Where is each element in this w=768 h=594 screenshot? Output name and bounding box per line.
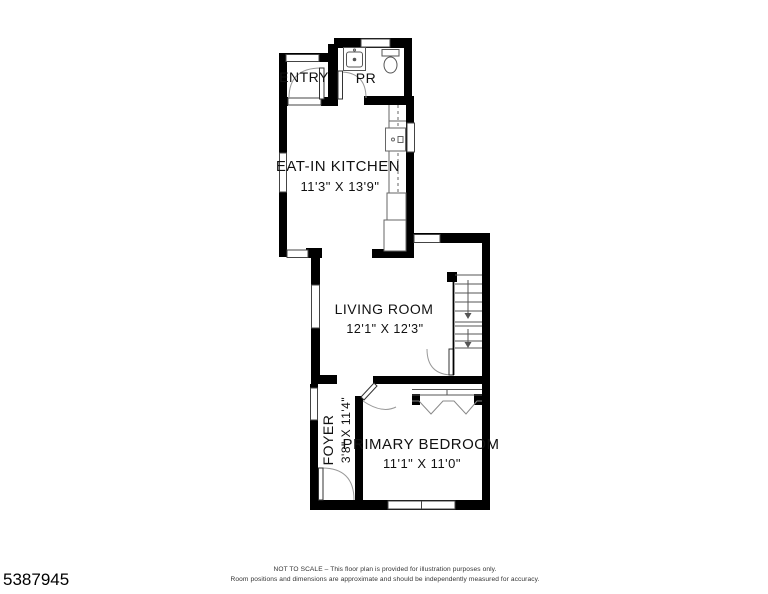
- window-pr-top: [361, 39, 390, 47]
- disclaimer-line-1: NOT TO SCALE – This floor plan is provid…: [273, 566, 496, 573]
- window-kitchen-step: [287, 250, 308, 258]
- window-foyer-left: [311, 388, 318, 420]
- window-entry-top: [286, 55, 319, 62]
- cabinet-icon: [384, 220, 406, 251]
- kitchen-dims: 11'3" X 13'9": [300, 179, 379, 194]
- living-room-label: LIVING ROOM: [335, 301, 434, 317]
- floor-plan-page: ENTRY PR EAT-IN KITCHEN 11'3" X 13'9" LI…: [0, 0, 768, 594]
- footer: NOT TO SCALE – This floor plan is provid…: [3, 566, 540, 589]
- staircase: [454, 275, 483, 375]
- primary-bedroom-dims: 11'1" X 11'0": [383, 456, 461, 471]
- stairs-down-arrow-icon: [465, 280, 472, 348]
- refrigerator-icon: [387, 193, 406, 220]
- listing-id: 5387945: [3, 570, 69, 589]
- primary-bedroom-label: PRIMARY BEDROOM: [343, 436, 500, 453]
- closet-rod-icon: [412, 401, 482, 414]
- kitchen-label: EAT-IN KITCHEN: [276, 158, 400, 175]
- powder-room-label: PR: [356, 70, 376, 86]
- closet: [412, 390, 482, 415]
- living-room-dims: 12'1" X 12'3": [346, 322, 423, 336]
- toilet-icon: [382, 50, 399, 74]
- disclaimer-line-2: Room positions and dimensions are approx…: [231, 576, 540, 583]
- window-living-top: [414, 235, 440, 243]
- window-kitchen-right: [407, 123, 415, 152]
- sink-icon: [344, 48, 366, 71]
- front-door-icon: [319, 468, 355, 500]
- floor-plan-drawing: ENTRY PR EAT-IN KITCHEN 11'3" X 13'9" LI…: [0, 0, 768, 594]
- entry-label: ENTRY: [279, 69, 329, 85]
- bedroom-door-icon: [361, 383, 396, 409]
- entry-doorway-threshold: [288, 98, 321, 105]
- foyer-label: FOYER: [320, 415, 336, 466]
- kitchen-counter: [384, 105, 406, 251]
- foyer-dims: 3'8" X 11'4": [339, 397, 353, 463]
- stair-door-icon: [427, 349, 454, 375]
- window-living-left: [312, 285, 320, 328]
